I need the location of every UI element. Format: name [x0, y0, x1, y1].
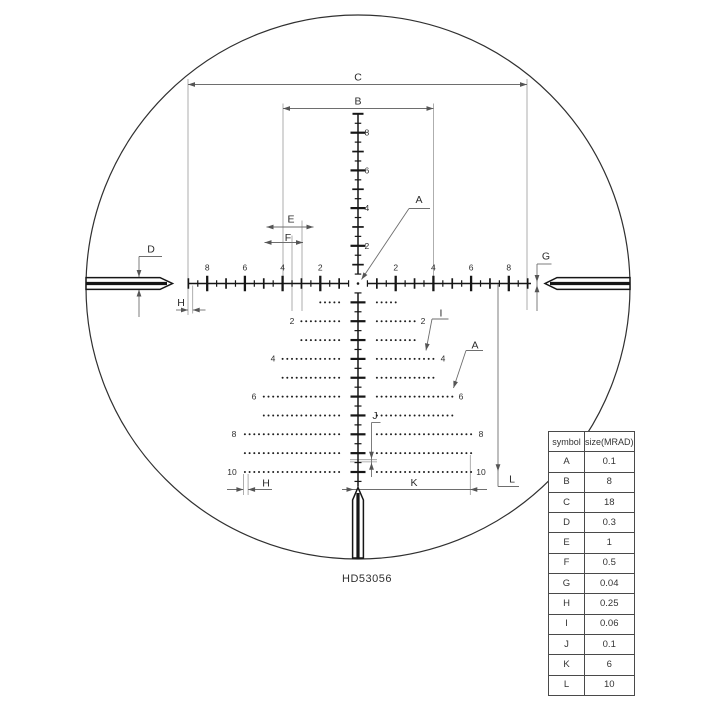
size-cell: 18 [585, 492, 635, 512]
table-row: G0.04 [549, 574, 635, 594]
size-cell: 10 [585, 675, 635, 695]
svg-text:8: 8 [365, 128, 370, 138]
svg-text:8: 8 [506, 263, 511, 273]
dimension-H: H [227, 478, 272, 492]
size-cell: 0.06 [585, 614, 635, 634]
svg-text:B: B [354, 96, 361, 108]
dimension-C: C [188, 72, 527, 87]
symbol-cell: J [549, 634, 585, 654]
svg-text:2: 2 [421, 316, 426, 326]
svg-text:2: 2 [290, 316, 295, 326]
svg-text:6: 6 [252, 391, 257, 401]
right-post [545, 278, 630, 290]
svg-text:2: 2 [318, 263, 323, 273]
table-header-size: size(MRAD) [585, 432, 635, 452]
svg-text:D: D [147, 244, 155, 256]
svg-text:4: 4 [431, 263, 436, 273]
vertical-axis [351, 114, 366, 487]
table-row: D0.3 [549, 513, 635, 533]
symbol-cell: B [549, 472, 585, 492]
svg-text:A: A [415, 194, 422, 206]
size-cell: 0.25 [585, 594, 635, 614]
table-row: H0.25 [549, 594, 635, 614]
symbol-cell: D [549, 513, 585, 533]
dimension-J: J [369, 410, 380, 477]
svg-text:2: 2 [393, 263, 398, 273]
svg-text:4: 4 [441, 354, 446, 364]
svg-text:L: L [509, 474, 515, 486]
symbol-cell: G [549, 574, 585, 594]
svg-text:H: H [177, 297, 185, 309]
svg-text:10: 10 [476, 467, 486, 477]
size-cell: 0.1 [585, 634, 635, 654]
horizontal-axis [188, 276, 531, 292]
dimension-E: E [267, 214, 314, 230]
symbol-cell: E [549, 533, 585, 553]
svg-text:F: F [285, 232, 291, 244]
dimension-A: A [451, 340, 483, 389]
size-cell: 0.3 [585, 513, 635, 533]
svg-text:A: A [471, 340, 478, 352]
svg-text:4: 4 [365, 203, 370, 213]
svg-text:G: G [542, 251, 550, 263]
dimension-H: H [176, 297, 206, 312]
reticle-model-label: HD53056 [322, 573, 412, 585]
svg-text:4: 4 [271, 354, 276, 364]
svg-text:8: 8 [479, 429, 484, 439]
mrad-table: symbolsize(MRAD)A0.1B8C18D0.3E1F0.5G0.04… [548, 431, 635, 696]
center-dot [357, 282, 360, 285]
table-header-symbol: symbol [549, 432, 585, 452]
svg-text:H: H [262, 478, 270, 490]
table-row: E1 [549, 533, 635, 553]
size-cell: 1 [585, 533, 635, 553]
svg-text:6: 6 [469, 263, 474, 273]
svg-text:6: 6 [365, 165, 370, 175]
bottom-post [353, 488, 364, 559]
table-row: L10 [549, 675, 635, 695]
dimension-B: B [283, 96, 434, 111]
dimension-L: L [496, 285, 519, 487]
dimension-K: K [342, 477, 487, 492]
size-cell: 0.1 [585, 452, 635, 472]
dimension-F: F [265, 232, 304, 245]
svg-text:10: 10 [227, 467, 237, 477]
dimension-I: I [424, 308, 449, 351]
table-row: J0.1 [549, 634, 635, 654]
svg-text:K: K [410, 477, 417, 489]
size-cell: 0.04 [585, 574, 635, 594]
left-post [86, 278, 173, 290]
table-row: C18 [549, 492, 635, 512]
svg-text:C: C [354, 72, 362, 84]
symbol-cell: C [549, 492, 585, 512]
symbol-cell: I [549, 614, 585, 634]
size-cell: 0.5 [585, 553, 635, 573]
svg-text:8: 8 [232, 429, 237, 439]
svg-text:I: I [440, 308, 443, 320]
table-row: I0.06 [549, 614, 635, 634]
svg-text:4: 4 [280, 263, 285, 273]
svg-text:6: 6 [459, 391, 464, 401]
svg-text:8: 8 [205, 263, 210, 273]
symbol-cell: F [549, 553, 585, 573]
size-cell: 6 [585, 655, 635, 675]
svg-text:2: 2 [365, 241, 370, 251]
symbol-cell: H [549, 594, 585, 614]
size-cell: 8 [585, 472, 635, 492]
table-row: F0.5 [549, 553, 635, 573]
table-row: A0.1 [549, 452, 635, 472]
table-row: B8 [549, 472, 635, 492]
table-row: K6 [549, 655, 635, 675]
reticle-diagram-page: CBAEFDGHHIAJKL864224688642224466881010 H… [0, 0, 713, 713]
symbol-cell: A [549, 452, 585, 472]
symbol-cell: L [549, 675, 585, 695]
svg-text:E: E [287, 214, 294, 226]
svg-text:6: 6 [243, 263, 248, 273]
symbol-cell: K [549, 655, 585, 675]
